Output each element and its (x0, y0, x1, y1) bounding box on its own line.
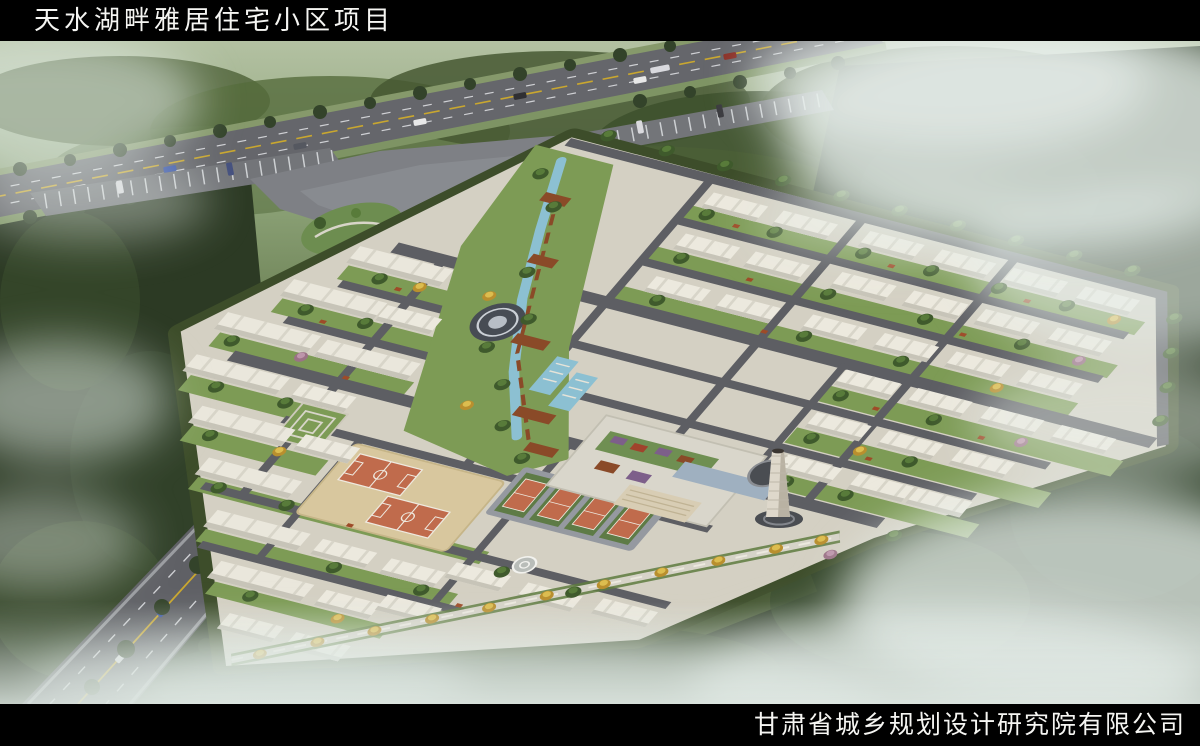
bottom-haze (0, 601, 1200, 704)
project-title: 天水湖畔雅居住宅小区项目 (34, 6, 394, 36)
credit-bar: 甘肃省城乡规划设计研究院有限公司 (0, 704, 1200, 746)
design-institute-name: 甘肃省城乡规划设计研究院有限公司 (754, 710, 1186, 739)
aerial-render-svg (0, 41, 1200, 704)
masterplan-rendering (0, 41, 1200, 704)
title-bar: 天水湖畔雅居住宅小区项目 (0, 0, 1200, 41)
poster-board: 天水湖畔雅居住宅小区项目 (0, 0, 1200, 746)
chimney-top (772, 449, 784, 454)
